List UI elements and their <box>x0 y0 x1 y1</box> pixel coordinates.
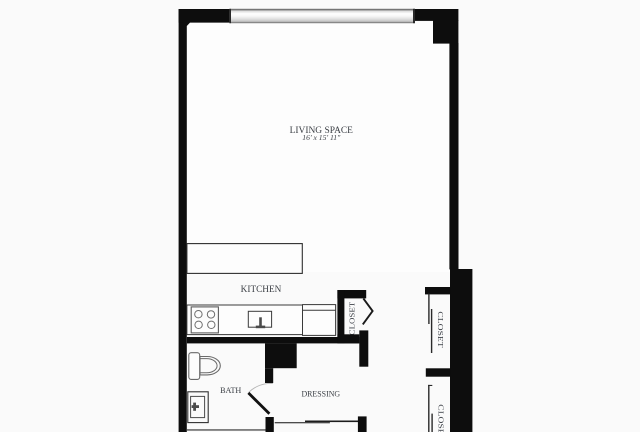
svg-text:BATH: BATH <box>220 386 241 395</box>
svg-text:CLOSET: CLOSET <box>436 404 445 432</box>
svg-text:CLOSET: CLOSET <box>436 311 445 348</box>
svg-text:DRESSING: DRESSING <box>301 390 340 399</box>
svg-text:KITCHEN: KITCHEN <box>241 284 282 294</box>
svg-text:LIVING SPACE: LIVING SPACE <box>290 125 354 135</box>
svg-text:CLOSET: CLOSET <box>347 301 356 335</box>
svg-text:16' x 15' 11": 16' x 15' 11" <box>302 135 340 142</box>
